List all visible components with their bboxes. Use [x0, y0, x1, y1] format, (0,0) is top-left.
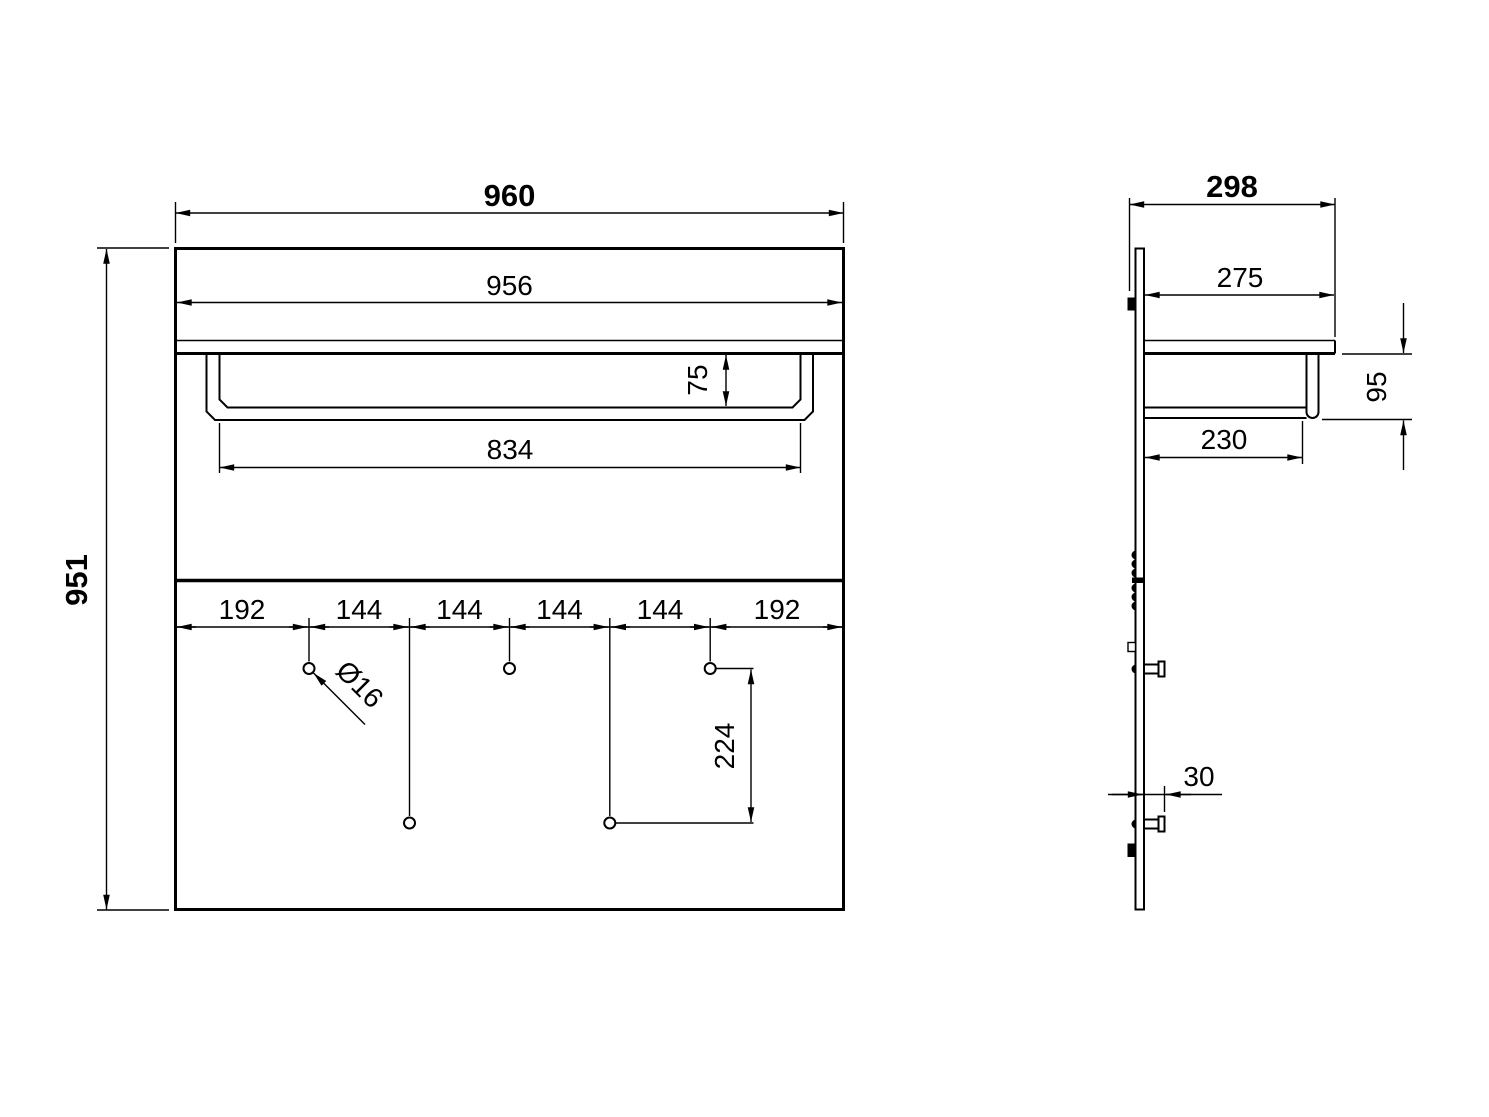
mount-bumps-lower	[1132, 584, 1137, 611]
hook-hole-2	[404, 818, 415, 829]
hook-hole-1	[304, 663, 315, 674]
dim-label-192-left: 192	[219, 594, 266, 625]
peg1-back-bump	[1132, 665, 1137, 674]
dim-label-144-2: 144	[436, 594, 483, 625]
dim-label-298: 298	[1206, 169, 1258, 204]
dim-label-960: 960	[484, 178, 536, 213]
hook-hole-3	[504, 663, 515, 674]
dim-overall-height: 951	[59, 248, 169, 910]
side-view	[1128, 249, 1336, 910]
peg2-back-bump	[1132, 820, 1137, 829]
dim-label-144-3: 144	[536, 594, 583, 625]
dim-label-192-right: 192	[754, 594, 801, 625]
wall-mount-bottom	[1128, 844, 1136, 858]
bar-bracket-side	[1307, 354, 1319, 419]
dim-bar-reach: 230	[1145, 421, 1303, 464]
peg1-cap	[1159, 662, 1165, 677]
dim-label-956: 956	[486, 270, 533, 301]
dim-label-95: 95	[1361, 371, 1392, 402]
dim-label-224: 224	[709, 723, 740, 770]
dim-label-275: 275	[1217, 262, 1264, 293]
dim-label-951: 951	[59, 554, 94, 606]
side-notch	[1128, 643, 1136, 652]
mount-bumps-upper	[1132, 551, 1137, 578]
dim-overall-width: 960	[176, 178, 844, 243]
drawing-canvas: 960 951 956 75 834	[0, 0, 1489, 1117]
dim-label-144-1: 144	[336, 594, 383, 625]
dim-peg-length: 30	[1108, 761, 1222, 812]
wall-mount-top	[1128, 298, 1136, 311]
dim-label-834: 834	[487, 434, 534, 465]
peg2-cap	[1159, 817, 1165, 832]
dim-overall-depth: 298	[1130, 169, 1336, 337]
dim-label-30: 30	[1183, 761, 1214, 792]
technical-drawing: 960 951 956 75 834	[0, 0, 1489, 1117]
dim-shelf-depth: 275	[1145, 262, 1334, 295]
hook-hole-4	[604, 818, 615, 829]
hook-hole-5	[705, 663, 716, 674]
dim-label-230: 230	[1201, 424, 1248, 455]
dim-label-144-4: 144	[637, 594, 684, 625]
divider-side-mark	[1132, 578, 1144, 584]
dim-label-75: 75	[682, 364, 713, 395]
front-view	[176, 249, 844, 910]
